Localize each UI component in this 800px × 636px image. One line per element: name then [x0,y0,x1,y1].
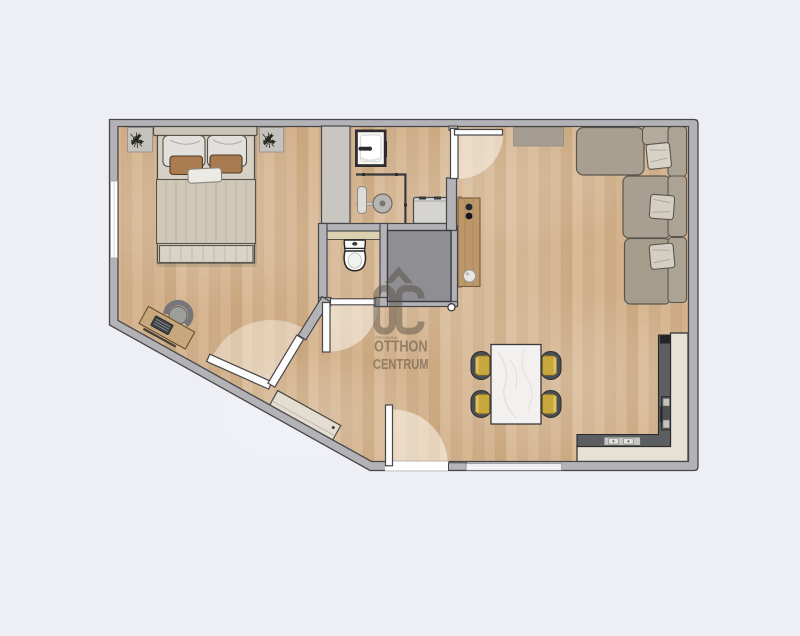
svg-text:OTTHON: OTTHON [374,338,428,355]
svg-text:CENTRUM: CENTRUM [373,357,429,373]
